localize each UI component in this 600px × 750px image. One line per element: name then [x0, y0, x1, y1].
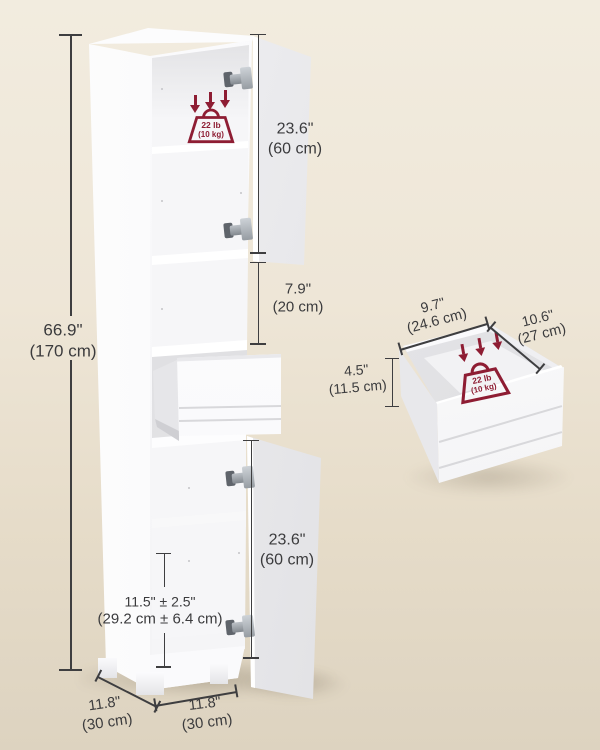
dimension-tick	[59, 669, 82, 671]
dimension-line	[164, 553, 166, 587]
open-shelf-height-label: 7.9" (20 cm)	[273, 281, 324, 318]
shelf-pin-hole	[188, 487, 190, 489]
shelf-pin-hole	[240, 192, 242, 194]
dimension-line	[392, 358, 394, 406]
shelf-load-metric: (10 kg)	[186, 130, 236, 139]
dimension-tick	[156, 666, 171, 668]
cabinet-foot	[98, 658, 117, 678]
dimension-tick	[243, 440, 259, 442]
dimension-line	[70, 360, 72, 670]
dimension-tick	[250, 343, 266, 345]
dimension-tick	[250, 252, 266, 254]
dimension-tick	[250, 262, 266, 264]
dimension-tick	[250, 34, 266, 36]
shelf-pin-hole	[161, 88, 163, 90]
width-label: 11.8" (30 cm)	[179, 693, 234, 735]
drawer-depth-label: 10.6" (27 cm)	[512, 304, 568, 350]
weight-capacity-icon: 22 lb (10 kg)	[186, 106, 236, 144]
product-dimension-diagram: 22 lb (10 kg) 22 lb (10 kg)	[0, 0, 600, 750]
upper-door-height-label: 23.6" (60 cm)	[268, 119, 322, 158]
shelf-pin-hole	[161, 200, 163, 202]
shelf-pin-hole	[238, 552, 240, 554]
shelf-pin-hole	[188, 560, 190, 562]
cabinet-foot	[136, 672, 164, 695]
dimension-line	[258, 262, 260, 344]
dimension-tick	[385, 406, 399, 408]
hinge-icon	[223, 216, 254, 245]
overall-height-label: 66.9" (170 cm)	[29, 320, 96, 361]
dimension-tick	[385, 358, 399, 360]
dimension-line	[70, 35, 72, 316]
dimension-tick	[156, 553, 171, 555]
dimension-line	[164, 633, 166, 667]
dimension-tick	[59, 34, 82, 36]
lower-door-height-label: 23.6" (60 cm)	[260, 530, 314, 569]
dimension-tick	[243, 657, 259, 659]
depth-label: 11.8" (30 cm)	[78, 693, 133, 736]
cabinet-foot	[210, 664, 228, 684]
shelf-load-pounds: 22 lb	[186, 120, 236, 130]
hinge-icon	[223, 65, 254, 94]
adjustable-shelf-label: 11.5" ± 2.5" (29.2 cm ± 6.4 cm)	[98, 593, 223, 628]
dimension-line	[251, 440, 253, 658]
shelf-pin-hole	[161, 308, 163, 310]
drawer-height-label: 4.5" (11.5 cm)	[327, 359, 388, 398]
dimension-line	[258, 34, 260, 253]
